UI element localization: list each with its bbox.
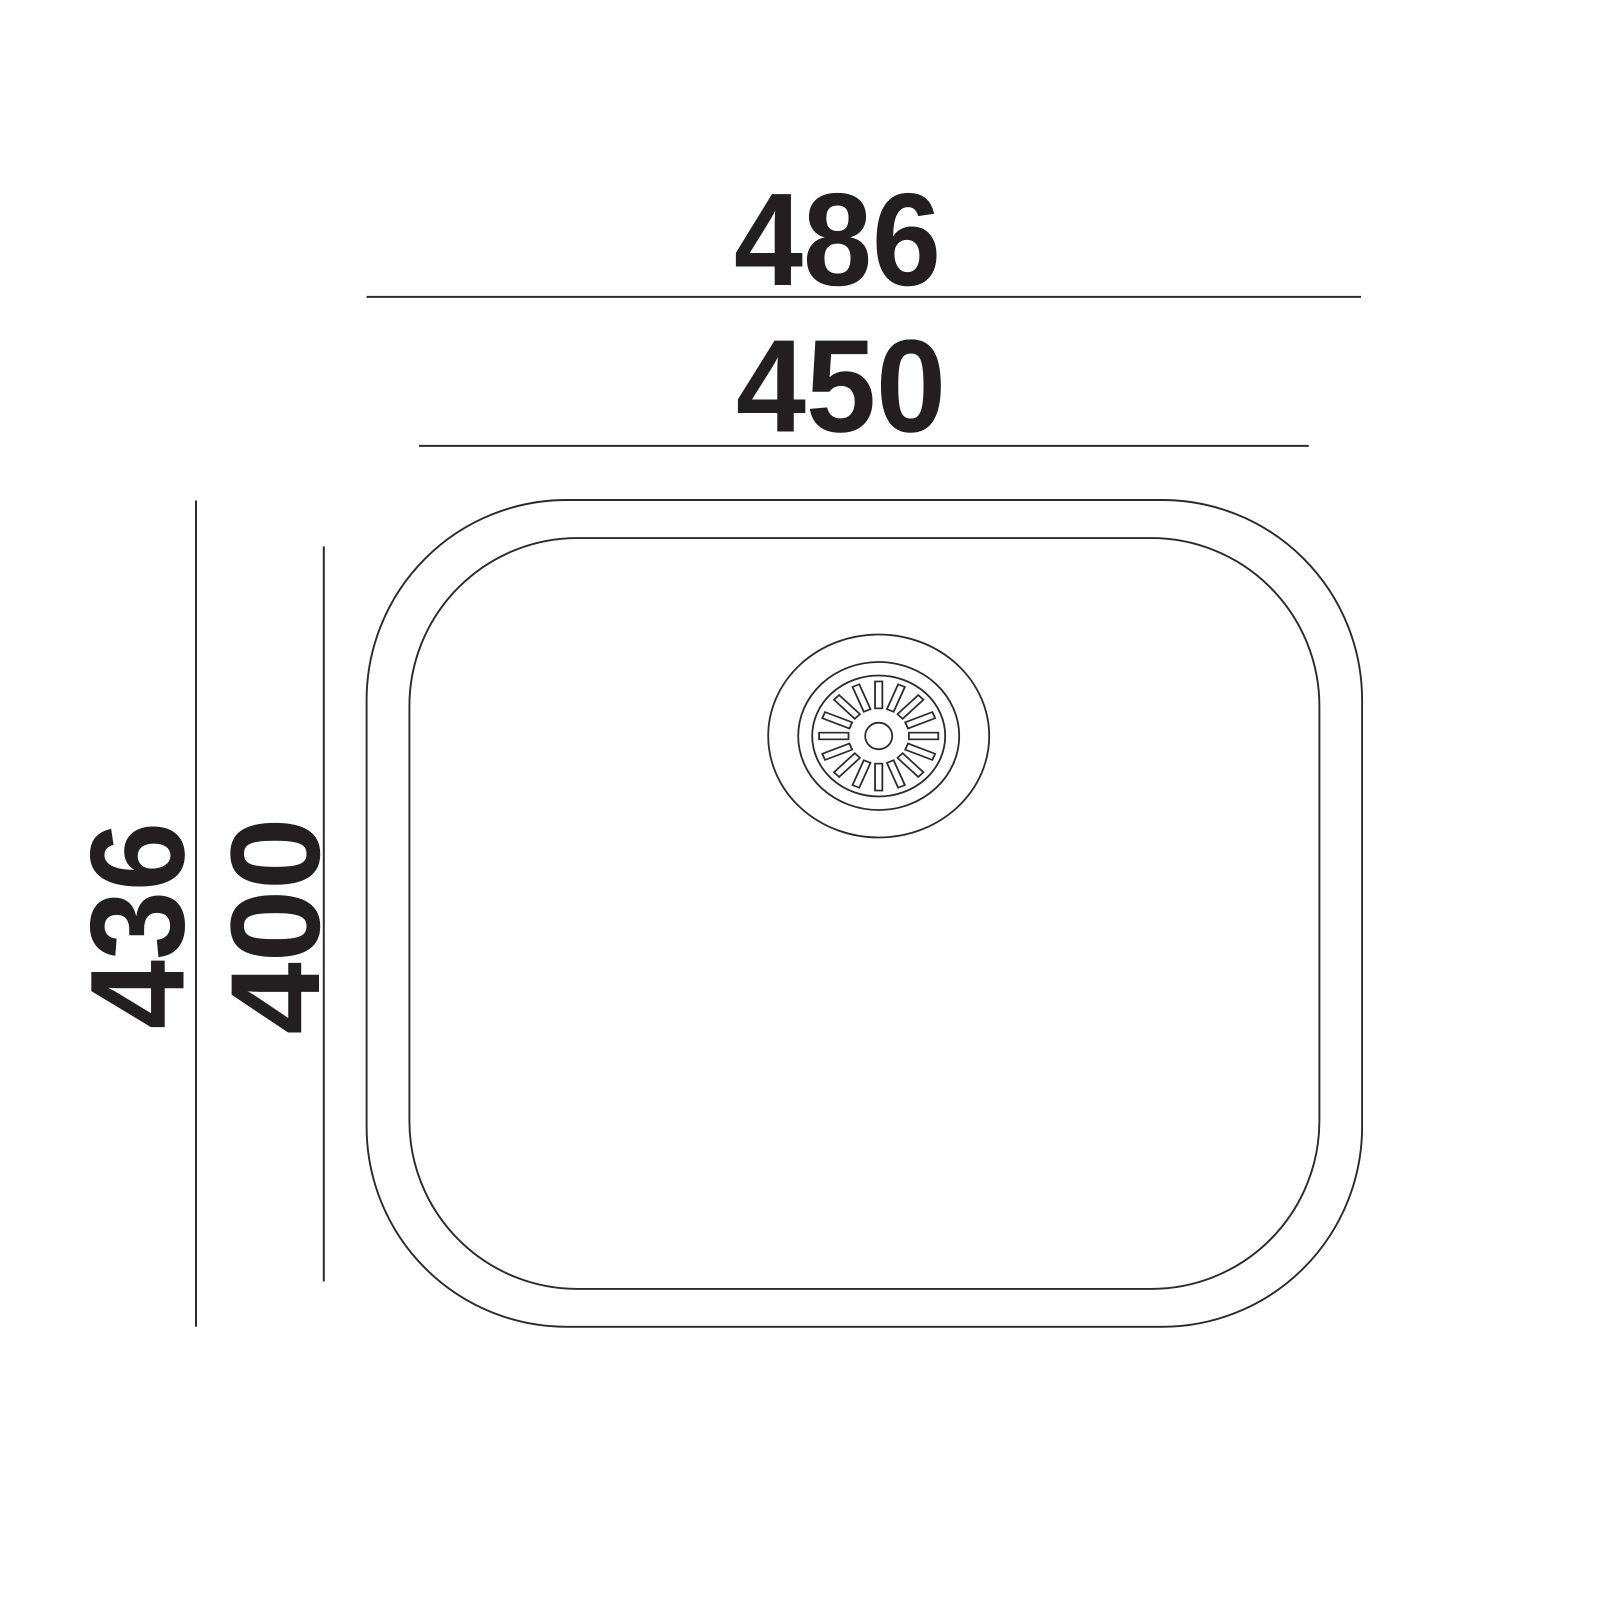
svg-text:436: 436 bbox=[64, 822, 213, 1029]
svg-text:450: 450 bbox=[736, 313, 946, 460]
svg-text:486: 486 bbox=[734, 166, 941, 313]
